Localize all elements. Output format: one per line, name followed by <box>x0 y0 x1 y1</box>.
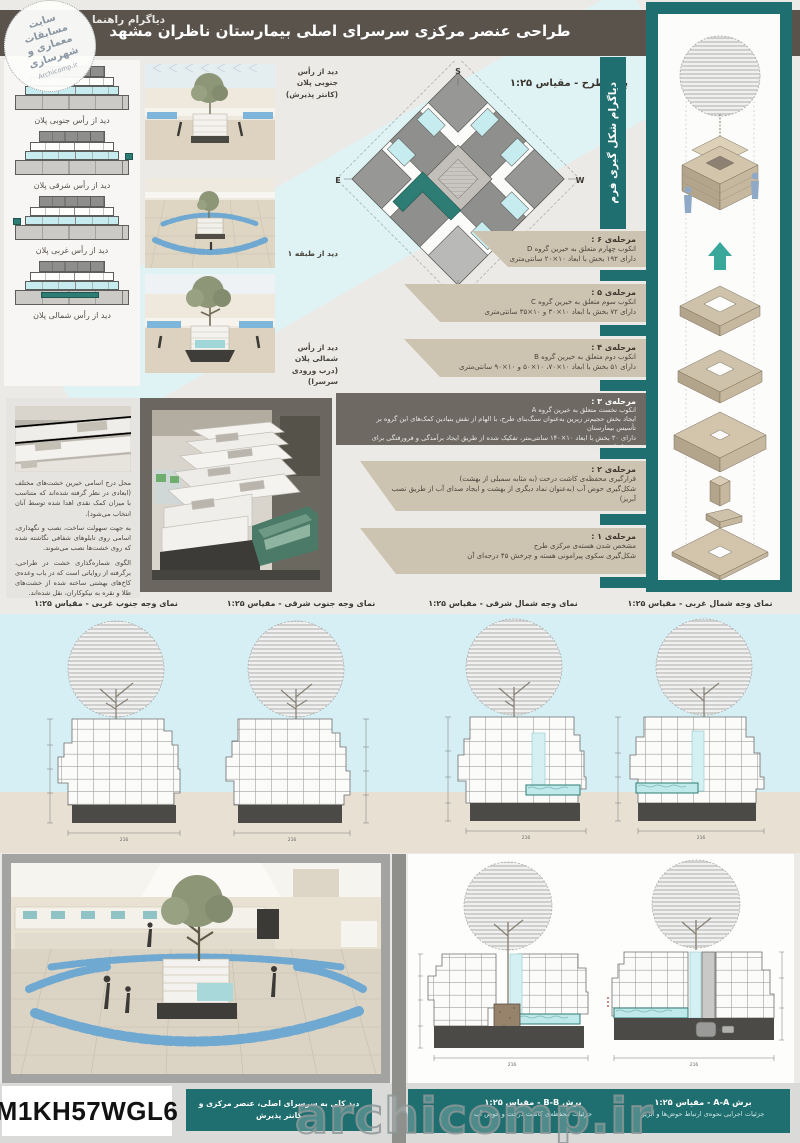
overall-lobby-render <box>2 854 390 1083</box>
red-dim-marks <box>607 997 609 1007</box>
notes-paragraph: الگوی شماره‌گذاری خشت در طراحی، برگرفته … <box>15 558 131 599</box>
elevation-sw-drawing: 216 <box>14 617 194 849</box>
iso-layer-c <box>678 350 762 403</box>
plinth <box>72 805 176 823</box>
iso-base-slab <box>672 528 768 580</box>
tree-icon <box>652 860 740 950</box>
render-floor1-label: دید از طبقه ۱ <box>278 248 338 259</box>
elevation-ne-drawing: 216 <box>422 617 602 849</box>
slab-left <box>428 954 496 1026</box>
plinth <box>470 803 580 821</box>
render-floor1 <box>145 178 275 268</box>
render-south-label: دید از رأس جنوبی پلان(کانتر پذیرش) <box>278 66 338 100</box>
presentation-board: طراحی عنصر مرکزی سرسرای اصلی بیمارستان ن… <box>0 0 800 1143</box>
iso-layer-d <box>680 286 760 336</box>
stage-connector <box>600 270 646 281</box>
header-bar-right <box>792 10 800 56</box>
archicomp-watermark: archicomp.ir <box>295 1088 653 1143</box>
compass-east: E <box>335 176 340 185</box>
iso-l-piece <box>706 509 742 528</box>
render-floor1-image <box>145 178 275 268</box>
elevation-se-drawing: 216 <box>208 617 388 849</box>
section-aa-drawing: 216 <box>604 858 784 1078</box>
water-basin <box>518 1014 580 1024</box>
render-north-label: دید از رأس شمالی پلان(درب ورودی سرسرا) <box>278 342 338 387</box>
notes-paragraph: محل درج اسامی خیرین خشت‌های مختلف (ابعاد… <box>15 478 131 519</box>
plinth <box>638 803 756 821</box>
stage-connector <box>600 448 646 459</box>
donor-notes-panel: محل درج اسامی خیرین خشت‌های مختلف (ابعاد… <box>6 398 140 598</box>
water-basin <box>526 785 580 795</box>
slab-stack <box>226 719 350 805</box>
dim-total: 216 <box>120 837 129 843</box>
central-planter <box>157 959 237 1019</box>
water-basin <box>636 783 698 793</box>
overall-lobby-image <box>11 863 381 1074</box>
stage-4-band: مرحله‌ی ۴ : انکوب دوم متعلق به خیرین گرو… <box>404 339 646 377</box>
iso-core-pillar <box>710 476 730 506</box>
up-arrow-icon <box>708 242 732 270</box>
diagram-caption: دید از رأس غربی پلان <box>9 246 135 255</box>
render-north-vertex-image <box>145 274 275 373</box>
dim-total: 216 <box>508 1062 517 1068</box>
plinth <box>614 1018 774 1040</box>
compass-south: S <box>455 67 461 76</box>
teal-notch <box>125 153 133 160</box>
stage-3-band: مرحله‌ی ۳ : انکوب نخست متعلق به خیرین گر… <box>336 393 646 445</box>
compass-west: W <box>576 176 585 185</box>
dim-total: 216 <box>288 837 297 843</box>
plinth <box>434 1026 584 1048</box>
section-bb-drawing: 216 <box>418 858 598 1078</box>
elevation-label-ne: نمای وجه شمال شرقی - مقیاس ۱:۲۵ <box>405 599 601 608</box>
element-closeup-render <box>140 398 332 592</box>
plan-view-diagram-north: دید از رأس شمالی پلان <box>9 261 135 320</box>
teal-notch <box>13 218 21 225</box>
stacked-bars-diagram <box>9 196 135 242</box>
elevation-label-se: نمای وجه جنوب شرقی - مقیاس ۱:۲۵ <box>205 599 397 608</box>
iso-exploded-drawing <box>658 14 780 580</box>
render-south-vertex-image <box>145 64 275 160</box>
stacked-bars-diagram <box>9 261 135 307</box>
stage-connector <box>600 325 646 336</box>
form-generation-diagram <box>658 14 780 580</box>
slab-left <box>612 952 688 1016</box>
dim-total: 216 <box>690 1062 699 1068</box>
waterfall <box>692 731 704 791</box>
slab-right <box>716 952 774 1018</box>
stage-connector <box>600 577 646 588</box>
central-planter <box>185 326 235 362</box>
notes-paragraph: به جهت سهولت ساخت، نصب و نگهداری، اسامی … <box>15 523 131 554</box>
iso-layer-b <box>674 412 766 472</box>
teal-bar <box>41 292 99 298</box>
tree-icon <box>466 619 562 717</box>
stage-1-band: مرحله‌ی ۱ : مشخص شدن هسته‌ی مرکزی طرح شک… <box>360 528 646 574</box>
elevation-label-nw: نمای وجه شمال غربی - مقیاس ۱:۲۵ <box>602 599 798 608</box>
stage-5-band: مرحله‌ی ۵ : انکوب سوم متعلق به خیرین گرو… <box>404 284 646 322</box>
plan-view-diagram-west: دید از رأس غربی پلان <box>9 196 135 255</box>
plan-view-diagram-east: دید از رأس شرقی پلان <box>9 131 135 190</box>
stacked-bars-diagram <box>9 131 135 177</box>
diagram-caption: دید از رأس جنوبی پلان <box>9 116 135 125</box>
tree-icon <box>68 621 164 719</box>
dim-total: 216 <box>522 835 531 841</box>
sections-panel: 216 216 <box>408 854 794 1083</box>
central-planter <box>195 218 225 239</box>
elevation-nw-drawing: 216 <box>614 617 794 849</box>
final-form-iso <box>682 136 758 210</box>
elevation-label-sw: نمای وجه جنوب غربی - مقیاس ۱:۲۵ <box>10 599 202 608</box>
waterfall <box>532 733 545 793</box>
central-planter <box>191 114 229 143</box>
waterfall <box>690 952 701 1018</box>
form-generation-panel <box>646 2 792 592</box>
water-basin <box>614 1008 688 1018</box>
diagram-caption: دید از رأس شمالی پلان <box>9 311 135 320</box>
render-north-vertex <box>145 274 275 373</box>
stage-connector <box>600 514 646 525</box>
guide-diagram-label: دیاگرام راهنما <box>92 14 165 26</box>
plinth <box>238 805 342 823</box>
donor-blocks-photo <box>15 406 131 472</box>
slab-stack <box>58 719 180 805</box>
tree-icon <box>248 621 344 719</box>
slab-right <box>518 954 588 1014</box>
board-code-box: M1KH57WGL6 <box>2 1086 172 1136</box>
tree-icon <box>656 619 752 717</box>
dim-total: 216 <box>697 835 706 841</box>
stage-2-band: مرحله‌ی ۲ : قرارگیری محفظه‌ی کاشت درخت (… <box>360 461 646 511</box>
render-south-vertex <box>145 64 275 160</box>
plan-view-diagram-panel: دید از رأس جنوبی پلان دید از رأس شرقی پل… <box>4 60 140 386</box>
stage-connector <box>600 380 646 391</box>
form-diagram-title-bar: دیاگرام شکل گیری فرم <box>600 57 626 229</box>
board-code: M1KH57WGL6 <box>0 1096 178 1127</box>
diagram-caption: دید از رأس شرقی پلان <box>9 181 135 190</box>
element-closeup-image <box>152 410 320 580</box>
form-diagram-title: دیاگرام شکل گیری فرم <box>607 82 619 204</box>
